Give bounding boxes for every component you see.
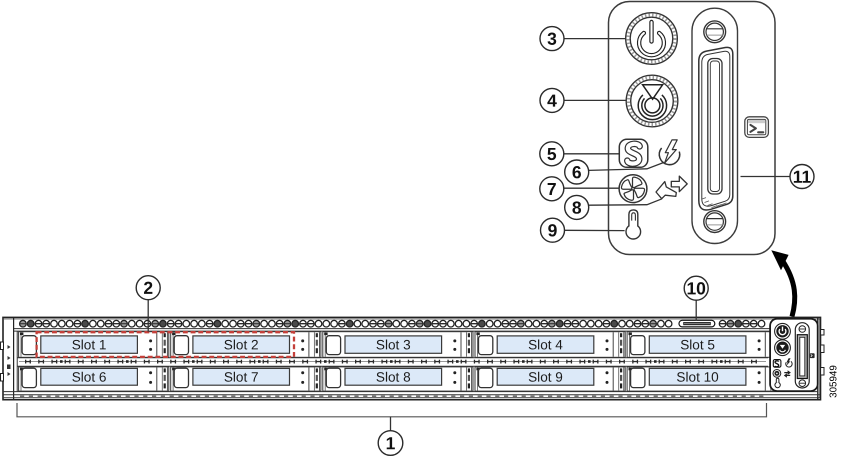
svg-text:Slot 8: Slot 8 [376,370,411,385]
svg-text:Slot 2: Slot 2 [224,337,259,352]
svg-text:2: 2 [143,278,153,298]
svg-text:1: 1 [386,433,396,453]
svg-text:Slot 7: Slot 7 [224,370,259,385]
svg-text:5: 5 [547,144,557,164]
svg-text:Slot 1: Slot 1 [72,337,107,352]
svg-text:Slot 6: Slot 6 [72,370,107,385]
svg-text:3: 3 [547,29,557,49]
svg-text:11: 11 [793,167,812,187]
svg-text:7: 7 [547,179,557,199]
svg-text:Slot 4: Slot 4 [528,337,563,352]
svg-text:Slot 9: Slot 9 [528,370,563,385]
svg-text:Slot 5: Slot 5 [680,337,715,352]
svg-text:Slot 3: Slot 3 [376,337,411,352]
svg-text:6: 6 [572,162,582,182]
svg-text:9: 9 [548,220,558,240]
svg-text:Slot 10: Slot 10 [676,370,719,385]
svg-text:8: 8 [572,198,582,218]
svg-text:305949: 305949 [829,365,840,398]
svg-text:4: 4 [547,91,557,111]
svg-text:10: 10 [686,278,706,298]
